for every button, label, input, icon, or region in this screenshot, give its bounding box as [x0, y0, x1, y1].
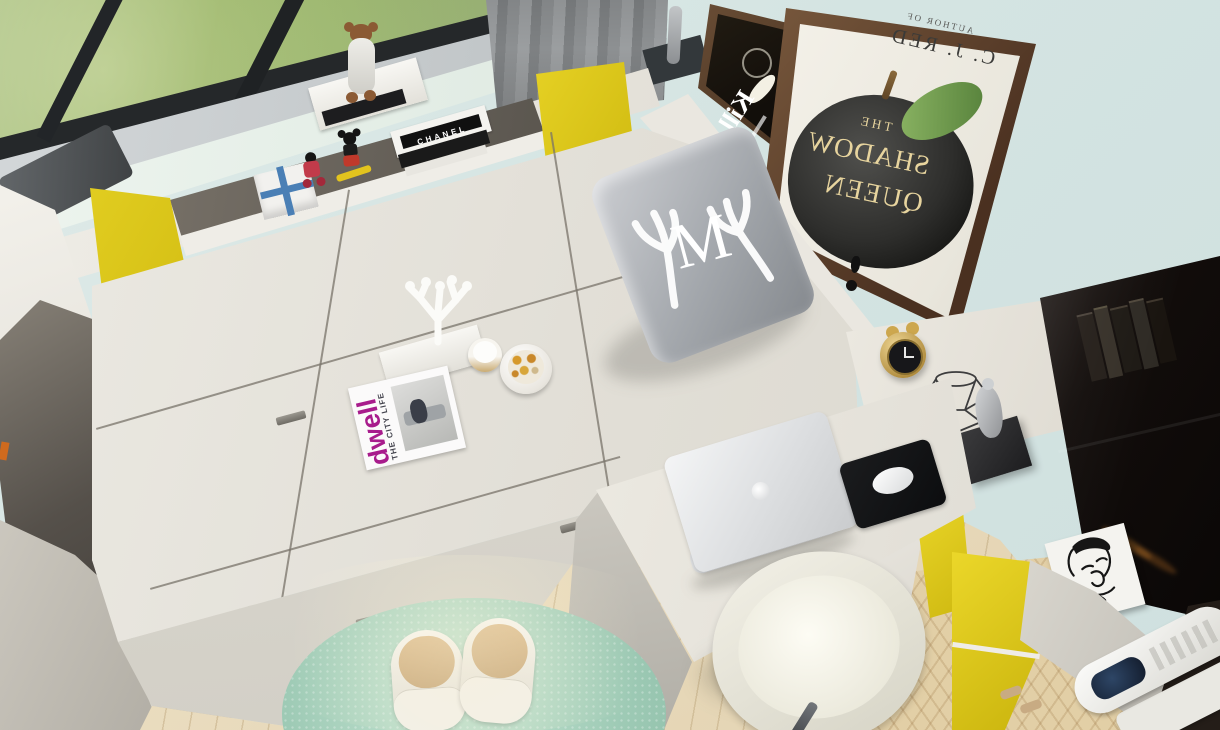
bedroom-render: Kill AUTHOR OF C. J. RED THE SHADOW QUEE…	[0, 0, 1220, 730]
kaws-figurine	[340, 22, 384, 106]
mickey-ear	[352, 128, 361, 137]
magazine-cover-photo	[391, 375, 458, 451]
kaws-foot	[346, 92, 358, 103]
apple-logo-icon	[749, 480, 771, 502]
slipper	[458, 615, 539, 725]
mickey-shorts	[343, 154, 360, 167]
minnie-toy	[297, 150, 328, 191]
minnie-dress	[303, 160, 321, 178]
coral-branches	[396, 272, 480, 348]
slipper-strap	[393, 685, 468, 730]
slipper-insole	[397, 634, 456, 690]
kaws-body	[348, 38, 375, 94]
minnie-trike-wheel	[316, 176, 326, 186]
minnie-trike-wheel	[302, 178, 312, 188]
snack-bowl-contents	[508, 350, 544, 384]
kaws-foot	[364, 90, 376, 101]
poster-kill-bulb-doodle	[742, 48, 772, 78]
candle-wax	[473, 341, 497, 363]
kaws-ear	[368, 22, 378, 32]
coral-ornament	[396, 272, 480, 348]
kaws-ear	[344, 22, 354, 32]
silver-figurine-head	[982, 378, 994, 390]
phone-screen	[1087, 653, 1150, 703]
clock-hand	[905, 356, 914, 358]
mickey-toy	[334, 130, 371, 181]
slipper-insole	[469, 622, 529, 681]
poster-queen-ink-drop	[846, 280, 857, 291]
